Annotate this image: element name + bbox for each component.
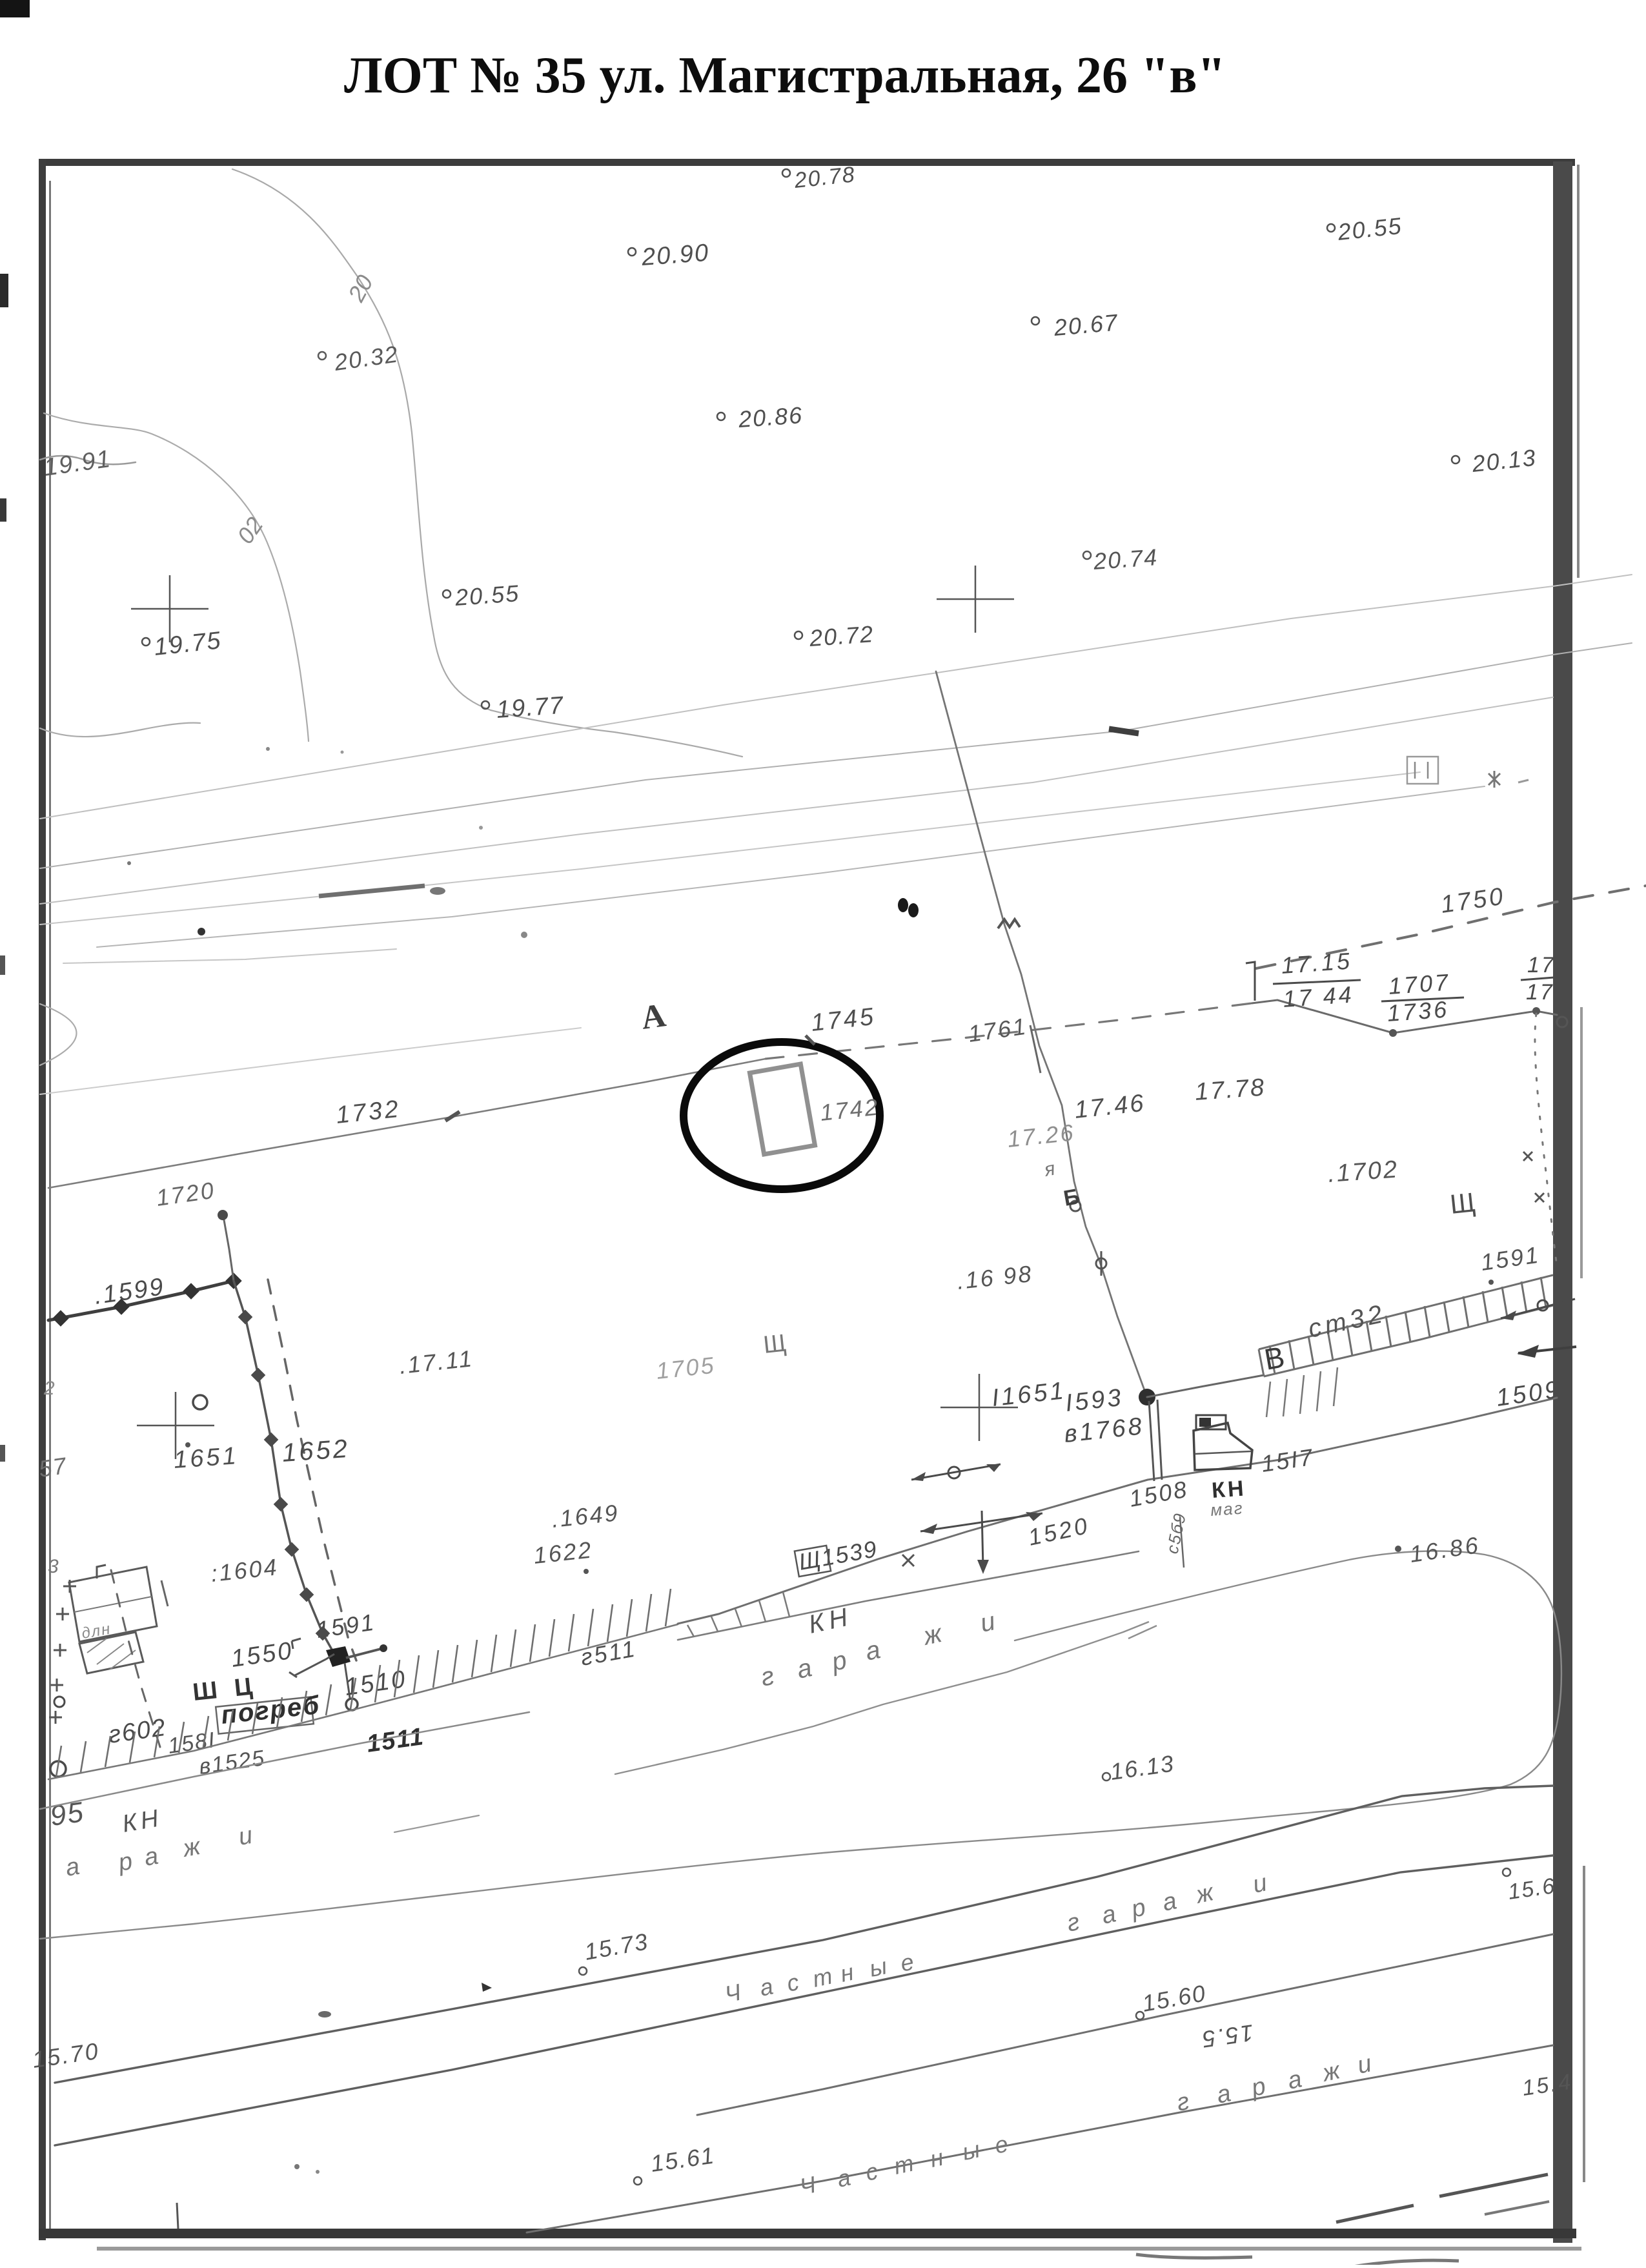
svg-text:1707: 1707 [1388, 968, 1452, 999]
svg-text:57: 57 [37, 1452, 68, 1482]
svg-text:маг: маг [1210, 1498, 1244, 1519]
svg-text:17.15: 17.15 [1280, 947, 1353, 979]
svg-text:20.72: 20.72 [808, 620, 875, 651]
svg-text:1736: 1736 [1387, 996, 1450, 1027]
svg-text:1651: 1651 [173, 1442, 239, 1474]
svg-text:Щ: Щ [1448, 1187, 1477, 1220]
svg-text:20.86: 20.86 [737, 402, 804, 433]
svg-text:Щ: Щ [762, 1329, 788, 1358]
svg-text:20.55: 20.55 [454, 580, 521, 611]
svg-text:17: 17 [1526, 980, 1554, 1005]
svg-text:17: 17 [1527, 953, 1556, 977]
svg-text:1652: 1652 [281, 1435, 351, 1467]
svg-text:19.77: 19.77 [496, 692, 565, 724]
svg-text:95: 95 [48, 1796, 86, 1832]
svg-text:17 44: 17 44 [1282, 981, 1355, 1012]
svg-text:.1702: .1702 [1327, 1156, 1400, 1188]
svg-text:20.74: 20.74 [1092, 544, 1159, 575]
svg-text:ЛОТ № 35 ул. Магистральная, 26: ЛОТ № 35 ул. Магистральная, 26 "в" [344, 47, 1226, 104]
svg-text:3: 3 [48, 1556, 59, 1577]
svg-text:20.90: 20.90 [640, 240, 711, 271]
svg-text:20.67: 20.67 [1052, 309, 1119, 341]
svg-text:17.78: 17.78 [1194, 1074, 1267, 1106]
svg-text:2: 2 [43, 1378, 55, 1399]
